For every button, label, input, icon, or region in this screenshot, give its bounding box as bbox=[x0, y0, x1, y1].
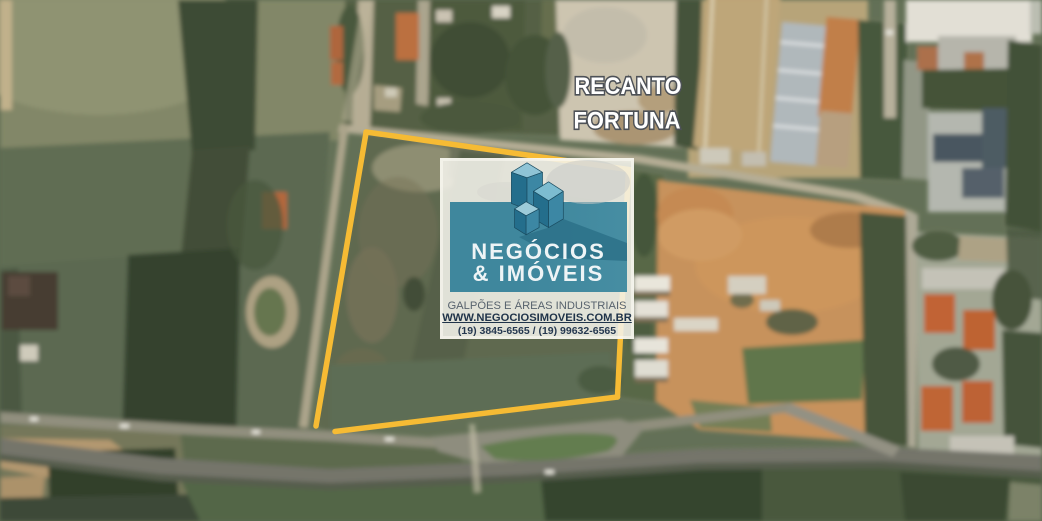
svg-text:RECANTO: RECANTO bbox=[575, 73, 682, 100]
svg-text:FORTUNA: FORTUNA bbox=[574, 108, 681, 135]
